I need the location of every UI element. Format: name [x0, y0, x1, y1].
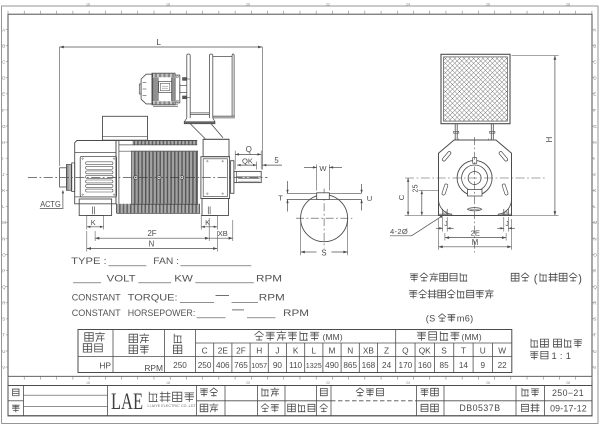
svg-text:RPM: RPM	[144, 363, 163, 373]
svg-text:C: C	[593, 60, 596, 65]
svg-text:N: N	[593, 236, 596, 241]
svg-text:T: T	[461, 345, 466, 355]
svg-text:14: 14	[459, 361, 469, 370]
svg-text:F: F	[593, 108, 596, 113]
svg-text:22: 22	[498, 361, 508, 370]
svg-text:D: D	[2, 76, 5, 81]
svg-text:D: D	[593, 76, 596, 81]
svg-text:B: B	[593, 43, 596, 48]
svg-text:24: 24	[406, 3, 410, 7]
svg-text:90: 90	[273, 361, 283, 370]
svg-text:P: P	[593, 268, 596, 273]
svg-text:22: 22	[326, 3, 330, 7]
svg-text:4-2Ø: 4-2Ø	[390, 227, 408, 236]
svg-text:490: 490	[325, 361, 339, 370]
svg-text:2F: 2F	[147, 229, 156, 238]
svg-text:24: 24	[382, 361, 392, 370]
svg-text:S: S	[593, 317, 596, 322]
svg-text:20: 20	[246, 381, 250, 385]
svg-text:ACTG: ACTG	[40, 200, 61, 209]
svg-text:S: S	[441, 345, 447, 355]
svg-text:U: U	[593, 349, 596, 354]
svg-text:250: 250	[198, 361, 212, 370]
svg-text:TYPE :: TYPE :	[71, 256, 107, 266]
svg-text:24: 24	[406, 381, 410, 385]
svg-text:R: R	[593, 301, 596, 306]
svg-text:5: 5	[274, 156, 279, 165]
svg-text:250−21: 250−21	[552, 388, 584, 398]
svg-text:25: 25	[411, 185, 420, 193]
svg-text:H: H	[545, 137, 554, 143]
svg-text:26: 26	[486, 3, 490, 7]
svg-text:865: 865	[343, 361, 357, 370]
svg-text:L: L	[156, 38, 161, 47]
svg-text:N: N	[2, 236, 5, 241]
svg-text:(MM): (MM)	[462, 332, 482, 342]
svg-text:2F: 2F	[236, 345, 246, 355]
svg-text:M: M	[472, 238, 479, 247]
svg-text:S: S	[321, 249, 326, 258]
svg-text:U: U	[480, 345, 486, 355]
svg-text:765: 765	[234, 361, 248, 370]
svg-text:HORSEPOWER:: HORSEPOWER:	[128, 308, 196, 318]
svg-text:G: G	[2, 124, 6, 129]
svg-text:XB: XB	[363, 345, 375, 355]
svg-text:B: B	[2, 43, 5, 48]
svg-text:J: J	[505, 221, 508, 228]
svg-text:Q: Q	[402, 345, 409, 355]
svg-text:I: I	[593, 156, 594, 161]
svg-text:K: K	[593, 188, 596, 193]
svg-text:TORQUE:: TORQUE:	[128, 292, 178, 302]
svg-text:QK: QK	[419, 345, 431, 355]
svg-text:1057: 1057	[251, 361, 267, 370]
svg-text:S: S	[2, 317, 5, 322]
svg-text:1 : 1: 1 : 1	[552, 350, 572, 361]
svg-text:26: 26	[486, 381, 490, 385]
svg-text:J: J	[275, 345, 279, 355]
svg-text:22: 22	[326, 381, 330, 385]
svg-text:16: 16	[86, 3, 90, 7]
svg-text:C: C	[202, 345, 208, 355]
svg-text:R: R	[2, 301, 5, 306]
svg-text:110: 110	[289, 361, 302, 370]
svg-text:M: M	[329, 345, 336, 355]
svg-text:P: P	[2, 268, 5, 273]
svg-text:E: E	[593, 92, 596, 97]
svg-text:18: 18	[166, 3, 170, 7]
svg-text:RPM: RPM	[283, 308, 309, 318]
svg-text:C: C	[2, 60, 5, 65]
svg-text:M: M	[593, 220, 597, 225]
svg-text:18: 18	[166, 381, 170, 385]
svg-text:RPM: RPM	[256, 273, 282, 283]
svg-text:J: J	[444, 221, 447, 228]
svg-text:250: 250	[173, 361, 187, 370]
svg-text:2E: 2E	[471, 229, 480, 238]
svg-text:C: C	[397, 194, 406, 200]
svg-text:160: 160	[418, 361, 432, 370]
svg-text:T: T	[593, 333, 596, 338]
svg-text:28: 28	[566, 381, 570, 385]
svg-text:N: N	[149, 240, 155, 249]
svg-text:): )	[578, 273, 582, 285]
svg-text:CONSTANT: CONSTANT	[72, 292, 121, 302]
svg-text:LAE: LAE	[111, 389, 143, 415]
svg-text:FAN :: FAN :	[153, 256, 179, 266]
svg-text:L: L	[2, 204, 5, 209]
svg-text:V: V	[2, 365, 5, 370]
svg-text:(MM): (MM)	[323, 332, 343, 342]
svg-text:U: U	[2, 349, 5, 354]
svg-text:XB: XB	[218, 229, 228, 238]
svg-text:Q: Q	[246, 145, 252, 154]
svg-text:HP: HP	[99, 360, 111, 370]
svg-text:L: L	[593, 204, 596, 209]
svg-text:(: (	[534, 273, 538, 285]
svg-text:H: H	[2, 140, 5, 145]
svg-text:T: T	[2, 333, 5, 338]
svg-text:1325: 1325	[306, 361, 322, 370]
svg-text:O: O	[2, 252, 6, 257]
svg-text:J: J	[593, 172, 595, 177]
svg-text:KW: KW	[174, 273, 193, 283]
svg-text:Z: Z	[384, 345, 389, 355]
svg-text:9: 9	[480, 361, 485, 370]
svg-text:O: O	[593, 252, 597, 257]
svg-text:H: H	[256, 345, 262, 355]
svg-text:28: 28	[566, 3, 570, 7]
svg-text:Q: Q	[2, 285, 6, 290]
svg-text:(S: (S	[426, 313, 436, 323]
svg-text:E: E	[2, 92, 5, 97]
svg-text:CONSTANT: CONSTANT	[72, 308, 121, 318]
svg-text:09-17-12: 09-17-12	[550, 404, 587, 414]
svg-text:N: N	[347, 345, 353, 355]
svg-text:RPM: RPM	[259, 292, 285, 302]
svg-text:G: G	[593, 124, 597, 129]
svg-text:W: W	[498, 345, 506, 355]
svg-text:DB0537B: DB0537B	[459, 403, 500, 413]
svg-text:K: K	[293, 345, 299, 355]
svg-text:H: H	[593, 140, 596, 145]
svg-text:2E: 2E	[218, 345, 229, 355]
svg-text:406: 406	[216, 361, 230, 370]
svg-text:T: T	[278, 193, 283, 202]
svg-text:M: M	[2, 220, 6, 225]
svg-text:VOLT: VOLT	[107, 273, 136, 283]
svg-text:Q: Q	[593, 285, 597, 290]
svg-text:I: I	[2, 156, 3, 161]
svg-text:20: 20	[246, 3, 250, 7]
svg-text:A: A	[2, 27, 5, 32]
svg-text:16: 16	[86, 381, 90, 385]
svg-text:85: 85	[440, 361, 450, 370]
svg-text:QK: QK	[242, 156, 253, 165]
svg-text:F: F	[2, 108, 5, 113]
svg-text:U: U	[367, 194, 372, 203]
svg-text:W: W	[319, 164, 327, 173]
svg-text:170: 170	[399, 361, 413, 370]
svg-text:A: A	[593, 27, 596, 32]
svg-text:m6): m6)	[457, 313, 474, 323]
svg-text:168: 168	[362, 361, 376, 370]
svg-text:V: V	[593, 365, 596, 370]
svg-text:L: L	[311, 345, 316, 355]
svg-text:K: K	[91, 218, 96, 227]
svg-text:J: J	[2, 172, 4, 177]
svg-text:LI AIYE ELECTRIC CO.,LDT: LI AIYE ELECTRIC CO.,LDT	[148, 404, 197, 408]
svg-text:K: K	[2, 188, 5, 193]
